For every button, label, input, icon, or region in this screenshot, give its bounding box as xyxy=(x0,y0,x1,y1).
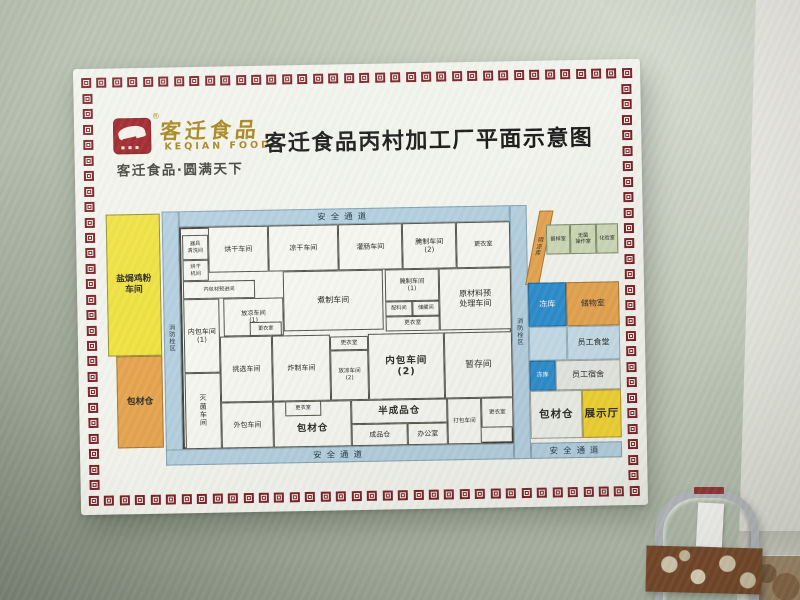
hand-truck-paper-tag xyxy=(696,502,724,547)
room-storage-small: 储藏间 xyxy=(412,301,439,316)
room-packaging-warehouse-west: 包材仓 xyxy=(116,356,164,449)
room-changing-c2: 更衣室 xyxy=(330,336,368,351)
room-drying-machine: 烘干 机间 xyxy=(182,260,208,281)
room-sterile-operation: 无菌 操作室 xyxy=(570,224,597,254)
room-curing-workshop-2: 腌制车间 (2) xyxy=(402,222,457,269)
room-inner-packing-1: 内包车间 (1) xyxy=(183,299,220,374)
room-canteen-corner xyxy=(529,326,568,361)
hand-truck-rusty-plate xyxy=(645,545,762,594)
photo-of-factory-floorplan-sign: ® 客迁食品 KEQIAN FOOD 客迁食品·圆满天下 客迁食品丙村加工厂平面… xyxy=(0,0,800,600)
room-semi-finished-warehouse: 半成品仓 xyxy=(351,398,447,424)
floorplan: 盐焗鸡粉 车间 包材仓 消 防 栓 区 安全通道 安全通道 消 防 栓 区 安全… xyxy=(98,199,623,470)
room-changing-se: 更衣室 xyxy=(481,397,514,428)
room-exhibition-hall: 展示厅 xyxy=(582,389,622,438)
room-laboratory: 化验室 xyxy=(596,223,619,253)
room-storage: 储物室 xyxy=(566,281,620,326)
hand-truck-red-label xyxy=(694,487,724,494)
room-ingredient: 配料间 xyxy=(385,301,412,316)
room-selection: 挑选车间 xyxy=(220,336,273,403)
floorplan-sign-board: ® 客迁食品 KEQIAN FOOD 客迁食品·圆满天下 客迁食品丙村加工厂平面… xyxy=(73,59,648,515)
room-changing-ne: 更衣室 xyxy=(456,221,511,268)
room-sample: 留样室 xyxy=(546,224,571,254)
brand-name-english: KEQIAN FOOD xyxy=(164,140,272,153)
room-packaging-warehouse-east: 包材仓 xyxy=(530,390,583,439)
room-sterilization: 灭 菌 车 间 xyxy=(185,373,222,450)
logo-bird-shape xyxy=(117,123,146,142)
room-raw-material-pretreatment: 原材料预 处理车间 xyxy=(439,267,512,330)
room-inner-pack-material-pre: 内包材预进间 xyxy=(183,280,255,299)
room-inner-packing-2: 内包车间 (2) xyxy=(368,332,445,399)
ornate-border-bottom xyxy=(89,484,640,508)
room-frying: 炸制车间 xyxy=(272,335,331,402)
room-cooling-workshop-2: 放凉车间 (2) xyxy=(330,350,369,401)
room-outer-packing: 外包车间 xyxy=(221,402,274,449)
room-air-drying-workshop: 凉干车间 xyxy=(268,224,339,271)
ornate-border-top xyxy=(81,66,632,90)
sign-title: 客迁食品丙村加工厂平面示意图 xyxy=(264,120,594,158)
room-changing-sw: 更衣室 xyxy=(285,401,321,417)
room-boiling-workshop: 煮制车间 xyxy=(283,270,384,332)
room-temporary-storage: 暂存间 xyxy=(444,331,513,398)
brand-slogan: 客迁食品·圆满天下 xyxy=(117,157,244,179)
room-freezer-south: 冻库 xyxy=(529,360,556,390)
room-salt-baked-chicken-workshop: 盐焗鸡粉 车间 xyxy=(106,214,163,357)
ornate-border-right xyxy=(619,84,640,480)
room-packing: 打包车间 xyxy=(447,398,482,445)
room-changing-c1: 更衣室 xyxy=(250,321,282,336)
room-staff-dormitory: 员工宿舍 xyxy=(555,359,621,390)
corridor-bottom-east-safety-passage: 安全通道 xyxy=(531,441,622,459)
room-freezer-north: 冻库 xyxy=(528,282,567,327)
room-drying-workshop: 烘干车间 xyxy=(208,226,269,273)
keqian-food-logo-icon xyxy=(113,118,152,155)
room-sausage-filling-workshop: 灌肠车间 xyxy=(338,223,403,270)
room-utensil-washing: 器具 清洗间 xyxy=(182,235,208,260)
room-finished-goods-warehouse: 成品仓 xyxy=(352,423,408,446)
room-curing-workshop-1: 腌制车间 (1) xyxy=(385,269,440,302)
room-changing-mid: 更衣室 xyxy=(386,316,440,332)
logo-small-marks xyxy=(121,146,141,149)
room-office: 办公室 xyxy=(408,422,448,445)
room-staff-canteen: 员工食堂 xyxy=(567,325,621,360)
registered-trademark-symbol: ® xyxy=(152,112,160,121)
